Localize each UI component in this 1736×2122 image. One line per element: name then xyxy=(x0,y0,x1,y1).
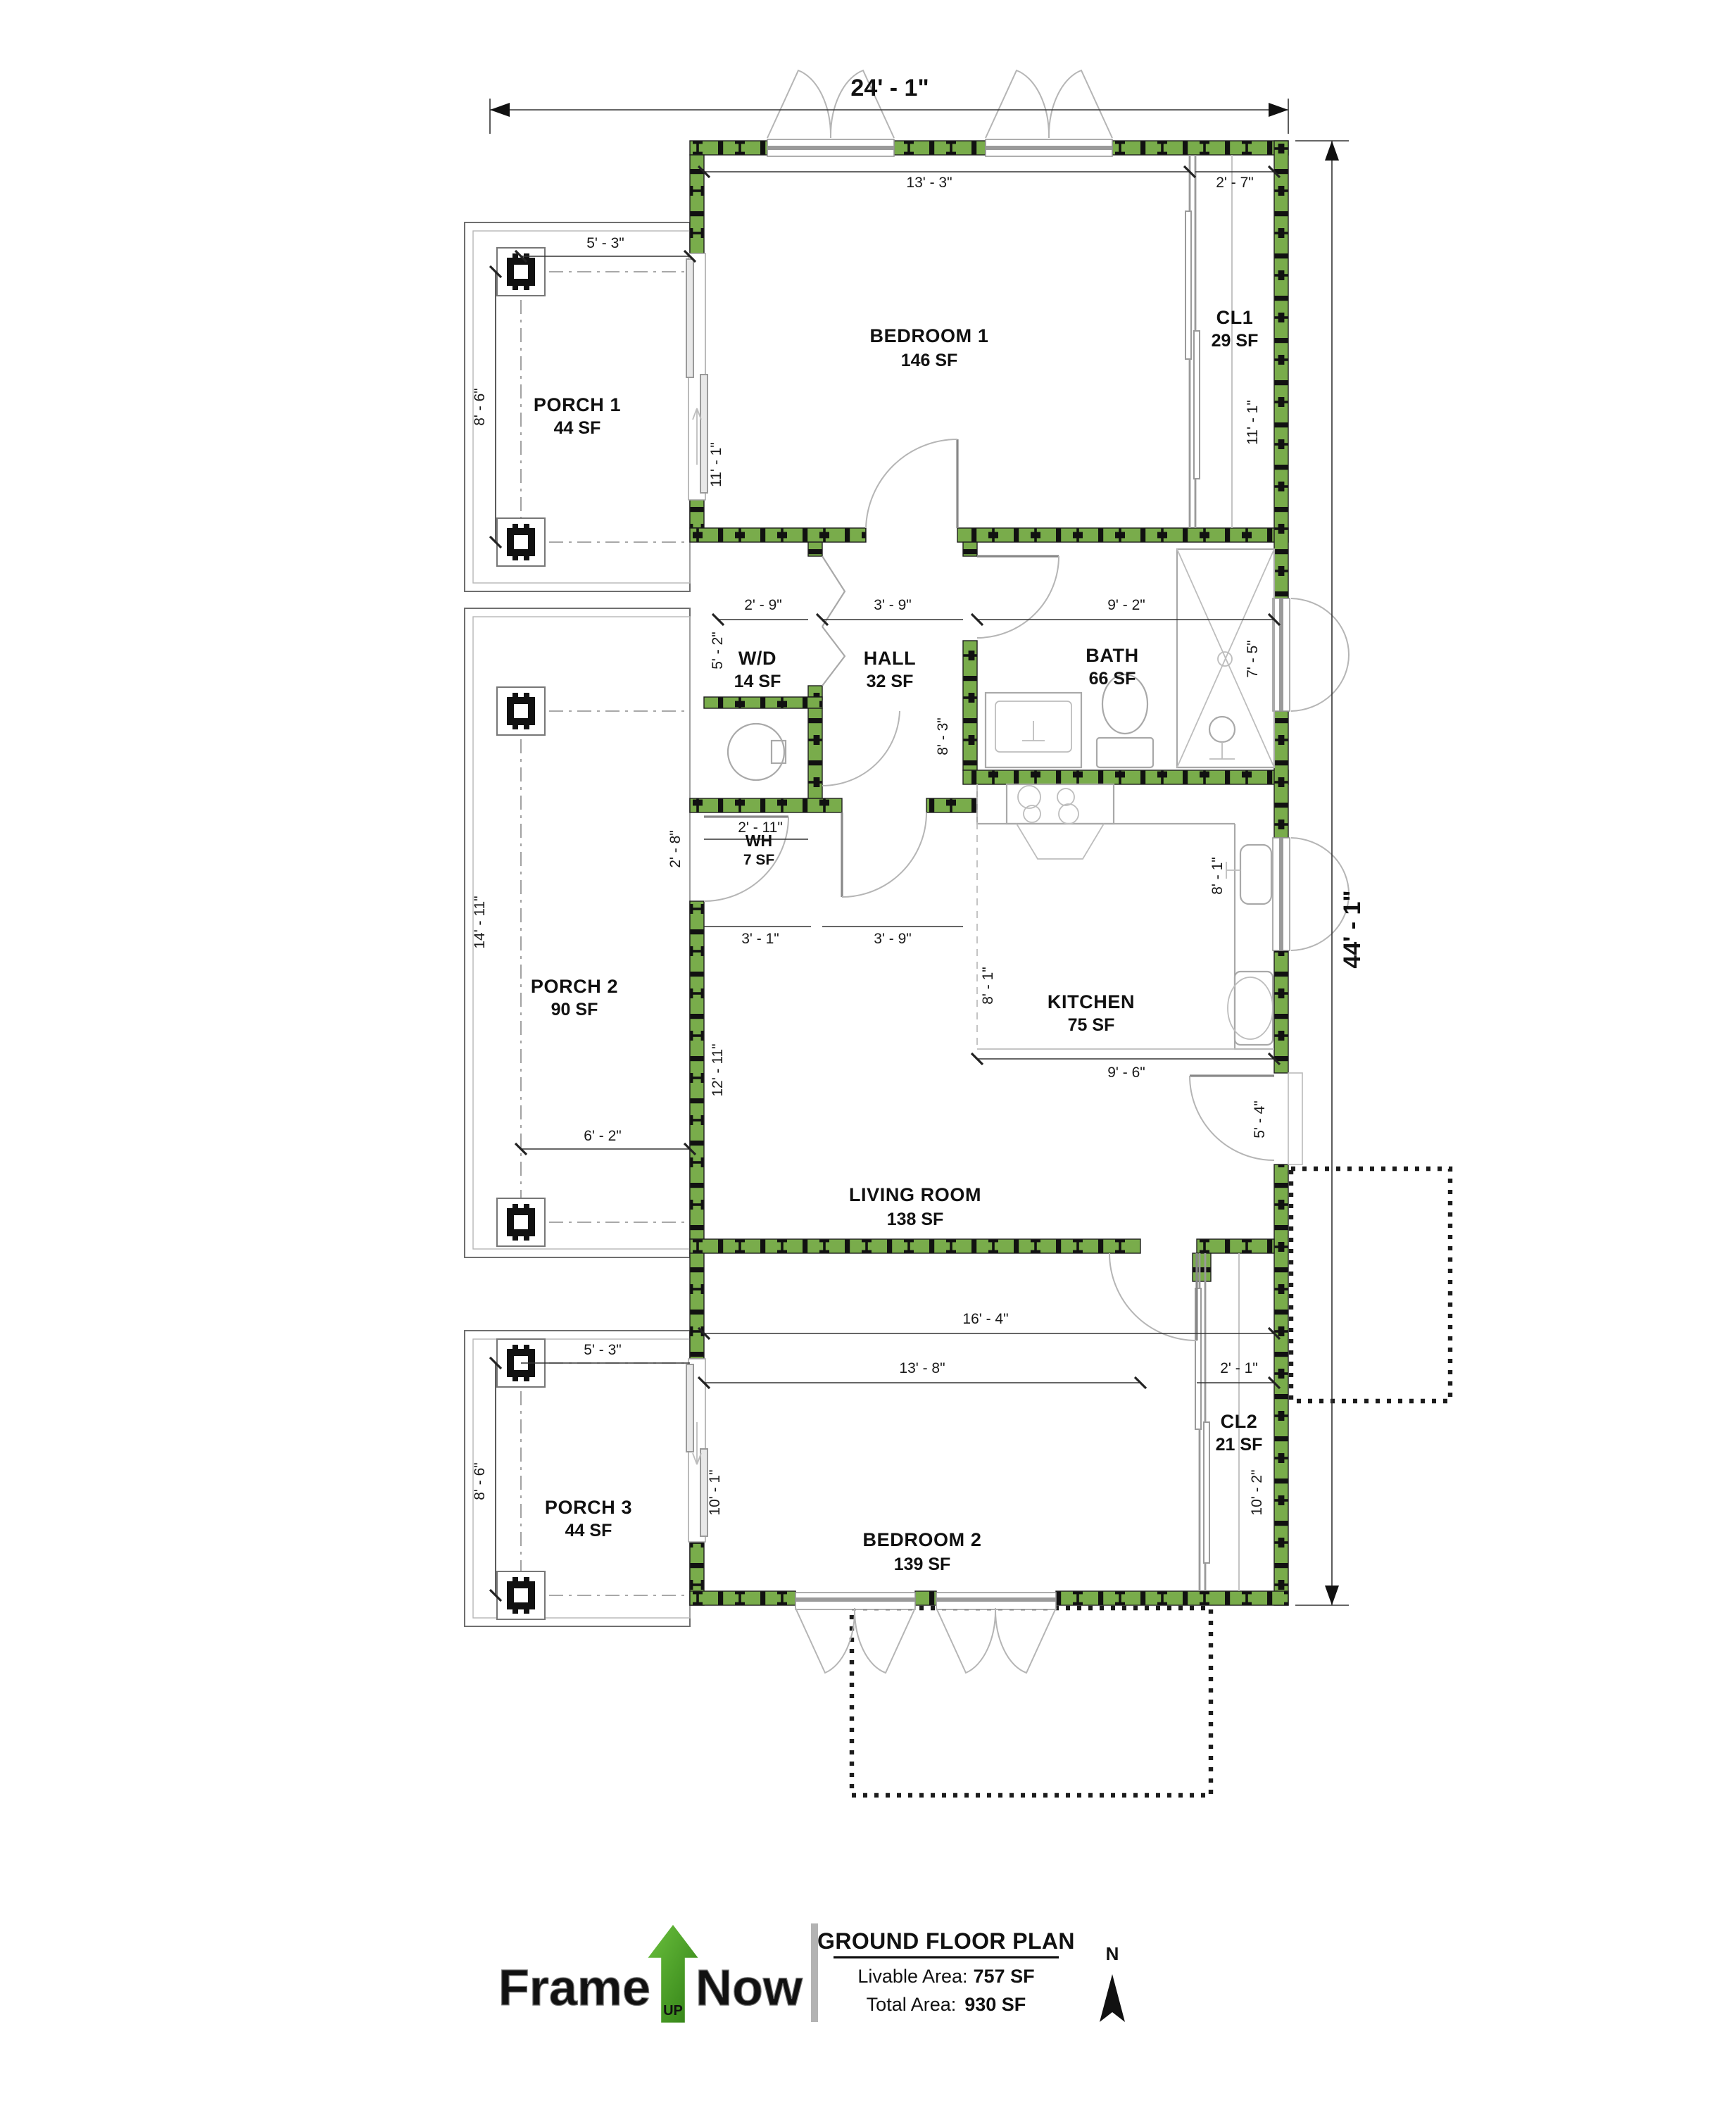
dim-hall-side: 8' - 3" xyxy=(935,717,951,755)
dim-kitchen-side-left: 8' - 1" xyxy=(980,967,996,1004)
dim-below-wh-right: 3' - 9" xyxy=(874,931,911,947)
wall-segment xyxy=(690,500,704,528)
dim-below-wh-left: 3' - 1" xyxy=(741,931,779,947)
cl1-sliding-door xyxy=(1185,211,1191,359)
dim-top-width: 24' - 1" xyxy=(850,75,929,101)
room-label-wd: W/D xyxy=(738,648,776,669)
room-label-living-room: LIVING ROOM xyxy=(849,1184,981,1205)
svg-text:14 SF: 14 SF xyxy=(734,672,781,691)
dim-entry-side: 5' - 4" xyxy=(1252,1100,1268,1138)
wall-segment xyxy=(963,641,977,770)
wall-segment xyxy=(690,528,866,542)
wall-segment xyxy=(690,1239,1140,1253)
room-label-bedroom1: BEDROOM 1 xyxy=(870,325,989,346)
wall-segment xyxy=(926,798,977,812)
kitchen-sink xyxy=(1240,845,1271,904)
dim-bedroom1-side: 11' - 1" xyxy=(708,442,724,487)
dim-wh-side: 2' - 8" xyxy=(667,830,684,867)
dim-porch2-width: 6' - 2" xyxy=(584,1128,621,1144)
room-label-wh: WH xyxy=(746,831,772,850)
svg-text:29 SF: 29 SF xyxy=(1212,331,1259,351)
wall-segment xyxy=(690,141,767,155)
wall-segment xyxy=(1056,1591,1288,1605)
hall-door-swing xyxy=(842,812,926,897)
wall-segment xyxy=(915,1591,936,1605)
wall-segment xyxy=(690,798,842,812)
dim-cl2-side: 10' - 2" xyxy=(1249,1469,1265,1515)
bedroom2-door-swing xyxy=(1109,1253,1197,1341)
livable-area-value: 757 SF xyxy=(974,1966,1035,1987)
svg-text:44 SF: 44 SF xyxy=(565,1521,612,1540)
dim-bedroom2-side: 10' - 1" xyxy=(707,1469,723,1515)
svg-text:138 SF: 138 SF xyxy=(887,1210,944,1229)
room-label-bath: BATH xyxy=(1086,645,1138,666)
wall-segment xyxy=(957,528,1288,542)
dim-porch3-depth: 8' - 6" xyxy=(472,1462,488,1500)
svg-text:75 SF: 75 SF xyxy=(1068,1015,1115,1035)
dim-kitchen-side-right: 8' - 1" xyxy=(1209,857,1226,894)
floor-plan-drawing: 24' - 1" 44' - 1" 13' - 3" 2' - 7" 5' - … xyxy=(0,0,1736,2122)
wall-segment xyxy=(1197,1239,1274,1253)
total-area-value: 930 SF xyxy=(964,1994,1026,2015)
livable-area-line: Livable Area:757 SF xyxy=(857,1966,1034,1987)
dim-cl1-side: 11' - 1" xyxy=(1245,400,1261,445)
wall-segment xyxy=(1274,950,1288,1073)
logo-now-text: Now xyxy=(696,1960,803,2016)
logo-frame-text: Frame xyxy=(498,1960,650,2016)
dim-bedroom1-width: 13' - 3" xyxy=(906,175,952,191)
wall-segment xyxy=(808,708,822,798)
dim-porch1-width: 5' - 3" xyxy=(586,235,624,251)
dim-bath-width: 9' - 2" xyxy=(1107,597,1145,613)
room-label-kitchen: KITCHEN xyxy=(1048,991,1135,1012)
logo-up-text: UP xyxy=(663,2003,683,2019)
dim-porch2-side: 14' - 11" xyxy=(472,896,488,948)
dim-living-side: 12' - 11" xyxy=(710,1043,726,1096)
sheet-title: GROUND FLOOR PLAN xyxy=(817,1928,1075,1954)
bedroom1-door-swing xyxy=(866,439,957,528)
wall-segment xyxy=(808,542,822,556)
dim-porch3-width: 5' - 3" xyxy=(584,1342,621,1358)
room-label-porch3: PORCH 3 xyxy=(545,1497,632,1518)
bath-door-swing xyxy=(977,556,1059,638)
wall-segment xyxy=(894,141,986,155)
svg-text:21 SF: 21 SF xyxy=(1216,1435,1263,1455)
porch2-post-top xyxy=(497,687,545,735)
dim-wd-width: 2' - 9" xyxy=(744,597,781,613)
toilet-tank xyxy=(1097,738,1153,767)
dim-overall-height: 44' - 1" xyxy=(1339,890,1366,968)
porch3-post-bottom xyxy=(497,1571,545,1619)
dim-kitchen-width: 9' - 6" xyxy=(1107,1065,1145,1081)
floor-plan-sheet: 24' - 1" 44' - 1" 13' - 3" 2' - 7" 5' - … xyxy=(0,0,1736,2122)
wh-door-swing xyxy=(822,711,900,786)
rear-stoop-outline xyxy=(852,1608,1211,1795)
fridge xyxy=(1235,972,1273,1045)
total-area-line: Total Area:930 SF xyxy=(867,1994,1026,2015)
svg-text:90 SF: 90 SF xyxy=(551,1000,598,1019)
wall-segment xyxy=(963,542,977,556)
room-label-cl1: CL1 xyxy=(1216,307,1254,328)
dim-cl1-width: 2' - 7" xyxy=(1216,175,1253,191)
livable-area-label: Livable Area: xyxy=(857,1966,967,1987)
wall-segment xyxy=(1274,711,1288,838)
wall-segment xyxy=(963,770,1288,784)
svg-text:44 SF: 44 SF xyxy=(554,418,601,438)
shower-head-icon xyxy=(1209,717,1235,742)
room-label-hall: HALL xyxy=(864,648,916,669)
room-label-porch2: PORCH 2 xyxy=(531,976,618,997)
wall-segment xyxy=(1274,141,1288,598)
svg-text:66 SF: 66 SF xyxy=(1089,669,1136,689)
svg-text:7 SF: 7 SF xyxy=(743,852,775,868)
svg-text:32 SF: 32 SF xyxy=(867,672,914,691)
dim-wd-side: 5' - 2" xyxy=(710,632,726,669)
stoop-outlines xyxy=(852,1169,1450,1795)
wall-segment xyxy=(690,901,704,1239)
svg-text:146 SF: 146 SF xyxy=(901,351,958,370)
room-label-bedroom2: BEDROOM 2 xyxy=(863,1529,982,1550)
wall-segment xyxy=(690,1253,704,1359)
entry-threshold xyxy=(1288,1073,1302,1164)
dim-bath-side: 7' - 5" xyxy=(1245,640,1261,677)
dim-bedroom2-width: 13' - 8" xyxy=(899,1360,945,1376)
dim-cl2-width: 2' - 1" xyxy=(1220,1360,1257,1376)
room-label-porch1: PORCH 1 xyxy=(534,394,621,415)
porch2-post-bottom xyxy=(497,1198,545,1246)
total-area-label: Total Area: xyxy=(867,1994,957,2015)
water-heater-icon xyxy=(728,724,784,780)
north-arrow-icon xyxy=(1100,1974,1125,2022)
wall-segment xyxy=(690,1591,795,1605)
dim-porch1-depth: 8' - 6" xyxy=(472,388,488,425)
dim-hall-width: 3' - 9" xyxy=(874,597,911,613)
room-label-cl2: CL2 xyxy=(1221,1411,1258,1432)
wall-segment xyxy=(1193,1253,1211,1281)
dim-living-width: 16' - 4" xyxy=(962,1311,1008,1327)
entry-stoop-outline xyxy=(1291,1169,1450,1401)
porch1-post-bottom xyxy=(497,518,545,566)
svg-text:139 SF: 139 SF xyxy=(894,1555,951,1574)
kitchen-counter-top xyxy=(977,784,1235,824)
title-block: Frame UP Now GROUND FLOOR PLAN Livable A… xyxy=(498,1923,1125,2023)
wd-bifold-door xyxy=(822,556,845,627)
wall-segment xyxy=(1112,141,1288,155)
north-label: N xyxy=(1106,1943,1119,1964)
wall-segment xyxy=(704,697,822,708)
